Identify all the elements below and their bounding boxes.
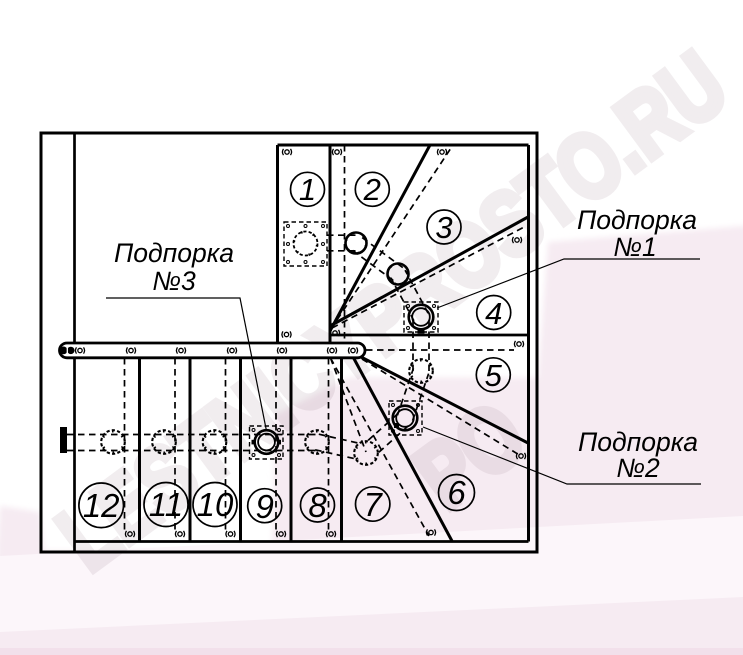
svg-text:4: 4	[485, 296, 502, 331]
svg-text:9: 9	[256, 488, 274, 525]
svg-text:11: 11	[149, 486, 183, 523]
svg-text:Подпорка: Подпорка	[114, 238, 234, 268]
svg-text:№3: №3	[152, 266, 196, 296]
svg-text:8: 8	[308, 487, 327, 524]
svg-text:2: 2	[363, 172, 381, 207]
svg-text:5: 5	[485, 358, 503, 393]
svg-text:№2: №2	[616, 453, 660, 483]
svg-text:6: 6	[447, 474, 466, 511]
svg-text:12: 12	[83, 487, 120, 524]
svg-text:1: 1	[299, 172, 316, 207]
svg-text:3: 3	[435, 210, 452, 245]
svg-text:№1: №1	[613, 232, 656, 262]
svg-text:7: 7	[364, 486, 384, 523]
svg-text:Подпорка: Подпорка	[577, 205, 697, 235]
svg-text:10: 10	[197, 486, 234, 523]
